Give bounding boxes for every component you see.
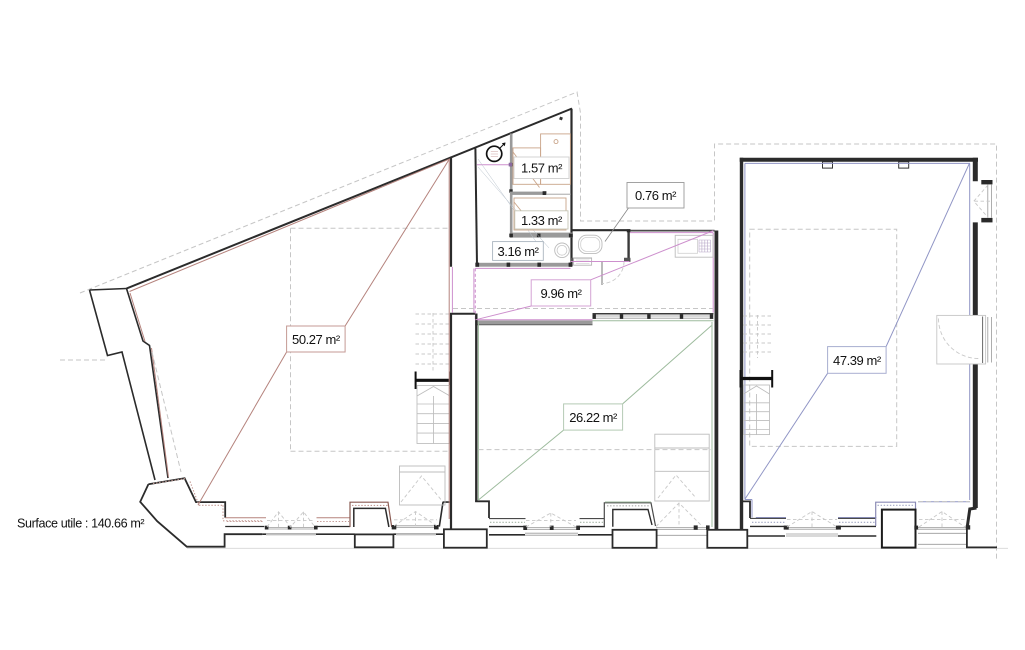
svg-text:3.16 m²: 3.16 m²: [498, 244, 540, 259]
svg-text:50.27 m²: 50.27 m²: [292, 332, 341, 347]
svg-text:0.76 m²: 0.76 m²: [635, 188, 677, 203]
svg-text:9.96 m²: 9.96 m²: [541, 286, 583, 301]
svg-text:26.22 m²: 26.22 m²: [569, 410, 618, 425]
svg-text:1.33 m²: 1.33 m²: [521, 213, 563, 228]
svg-text:Surface utile : 140.66 m²: Surface utile : 140.66 m²: [17, 517, 144, 531]
svg-text:1.57 m²: 1.57 m²: [521, 161, 563, 176]
svg-text:47.39 m²: 47.39 m²: [833, 353, 882, 368]
